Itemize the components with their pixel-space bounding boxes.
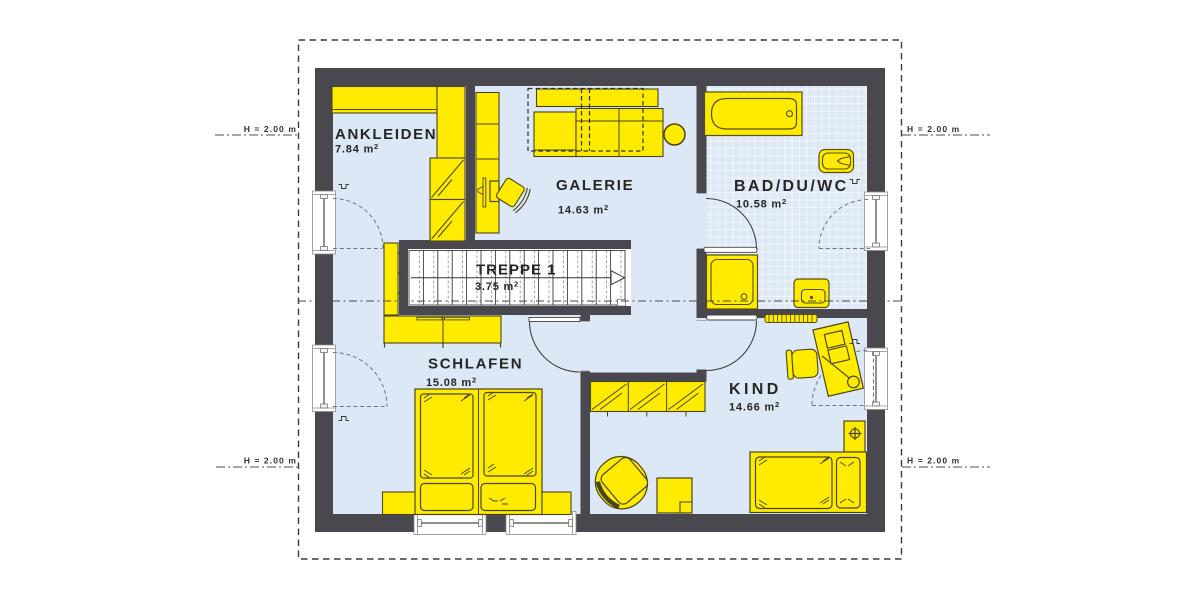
svg-text:H = 2.00 m: H = 2.00 m — [244, 124, 297, 134]
svg-text:SCHLAFEN: SCHLAFEN — [428, 356, 523, 373]
svg-text:7.84 m2: 7.84 m2 — [335, 142, 379, 156]
svg-text:14.63 m2: 14.63 m2 — [558, 203, 609, 217]
svg-text:GALERIE: GALERIE — [556, 177, 634, 194]
svg-text:3.75 m2: 3.75 m2 — [475, 280, 519, 294]
svg-text:10.58 m2: 10.58 m2 — [736, 197, 787, 211]
svg-text:H = 2.00 m: H = 2.00 m — [907, 456, 960, 466]
svg-text:14.66 m2: 14.66 m2 — [729, 400, 780, 414]
svg-text:KIND: KIND — [729, 381, 782, 398]
svg-text:TREPPE 1: TREPPE 1 — [476, 262, 557, 279]
svg-text:ANKLEIDEN: ANKLEIDEN — [335, 126, 437, 143]
svg-text:15.08 m2: 15.08 m2 — [426, 376, 477, 390]
svg-text:H = 2.00 m: H = 2.00 m — [907, 124, 960, 134]
svg-text:BAD/DU/WC: BAD/DU/WC — [734, 178, 848, 195]
svg-text:H = 2.00 m: H = 2.00 m — [244, 456, 297, 466]
